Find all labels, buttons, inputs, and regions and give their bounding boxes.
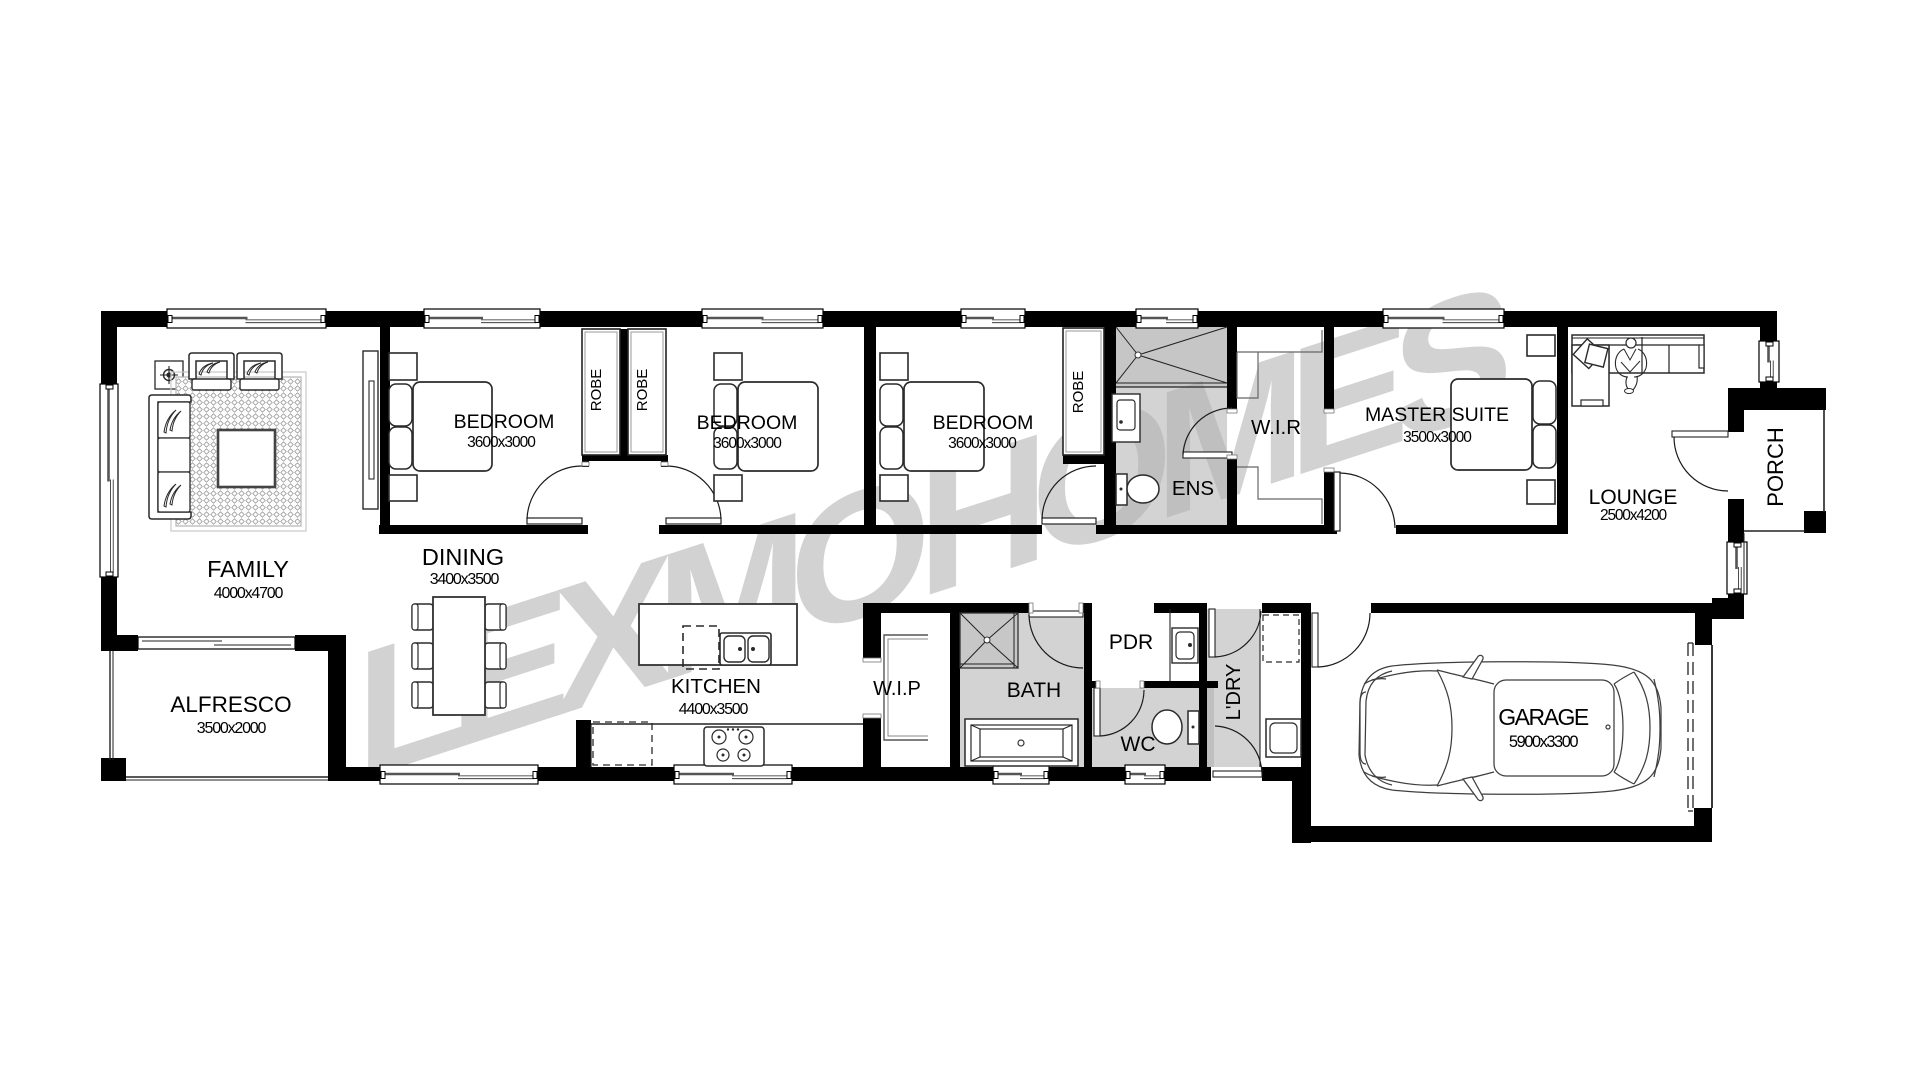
svg-text:3500x3000: 3500x3000 bbox=[1403, 429, 1472, 446]
svg-text:PDR: PDR bbox=[1109, 631, 1153, 654]
svg-text:KITCHEN: KITCHEN bbox=[671, 675, 761, 698]
svg-text:ROBE: ROBE bbox=[588, 369, 605, 412]
svg-text:FAMILY: FAMILY bbox=[207, 556, 289, 582]
svg-text:DINING: DINING bbox=[422, 544, 504, 570]
svg-text:W.I.P: W.I.P bbox=[873, 678, 921, 700]
svg-text:BEDROOM: BEDROOM bbox=[697, 412, 798, 434]
svg-text:3500x2000: 3500x2000 bbox=[197, 720, 267, 737]
svg-text:BEDROOM: BEDROOM bbox=[933, 412, 1034, 434]
svg-text:BATH: BATH bbox=[1007, 679, 1061, 702]
svg-text:3600x3000: 3600x3000 bbox=[467, 434, 536, 451]
svg-text:3400x3500: 3400x3500 bbox=[430, 571, 500, 588]
svg-text:3600x3000: 3600x3000 bbox=[713, 435, 782, 452]
svg-text:PORCH: PORCH bbox=[1763, 427, 1788, 506]
svg-text:GARAGE: GARAGE bbox=[1498, 704, 1589, 730]
svg-text:ENS: ENS bbox=[1172, 477, 1214, 500]
svg-text:2500x4200: 2500x4200 bbox=[1600, 507, 1667, 524]
svg-text:5900x3300: 5900x3300 bbox=[1509, 733, 1578, 751]
svg-text:ROBE: ROBE bbox=[1070, 371, 1087, 414]
svg-text:ALFRESCO: ALFRESCO bbox=[170, 692, 291, 717]
svg-text:3600x3000: 3600x3000 bbox=[948, 435, 1017, 452]
svg-text:4400x3500: 4400x3500 bbox=[679, 701, 749, 718]
svg-text:LOUNGE: LOUNGE bbox=[1589, 486, 1678, 509]
svg-text:4000x4700: 4000x4700 bbox=[214, 585, 284, 602]
svg-text:ROBE: ROBE bbox=[634, 369, 651, 412]
svg-text:MASTER SUITE: MASTER SUITE bbox=[1365, 404, 1509, 426]
svg-text:WC: WC bbox=[1121, 733, 1156, 756]
svg-text:L'DRY: L'DRY bbox=[1223, 664, 1245, 721]
svg-text:BEDROOM: BEDROOM bbox=[454, 411, 555, 433]
svg-text:W.I.R: W.I.R bbox=[1251, 416, 1301, 439]
